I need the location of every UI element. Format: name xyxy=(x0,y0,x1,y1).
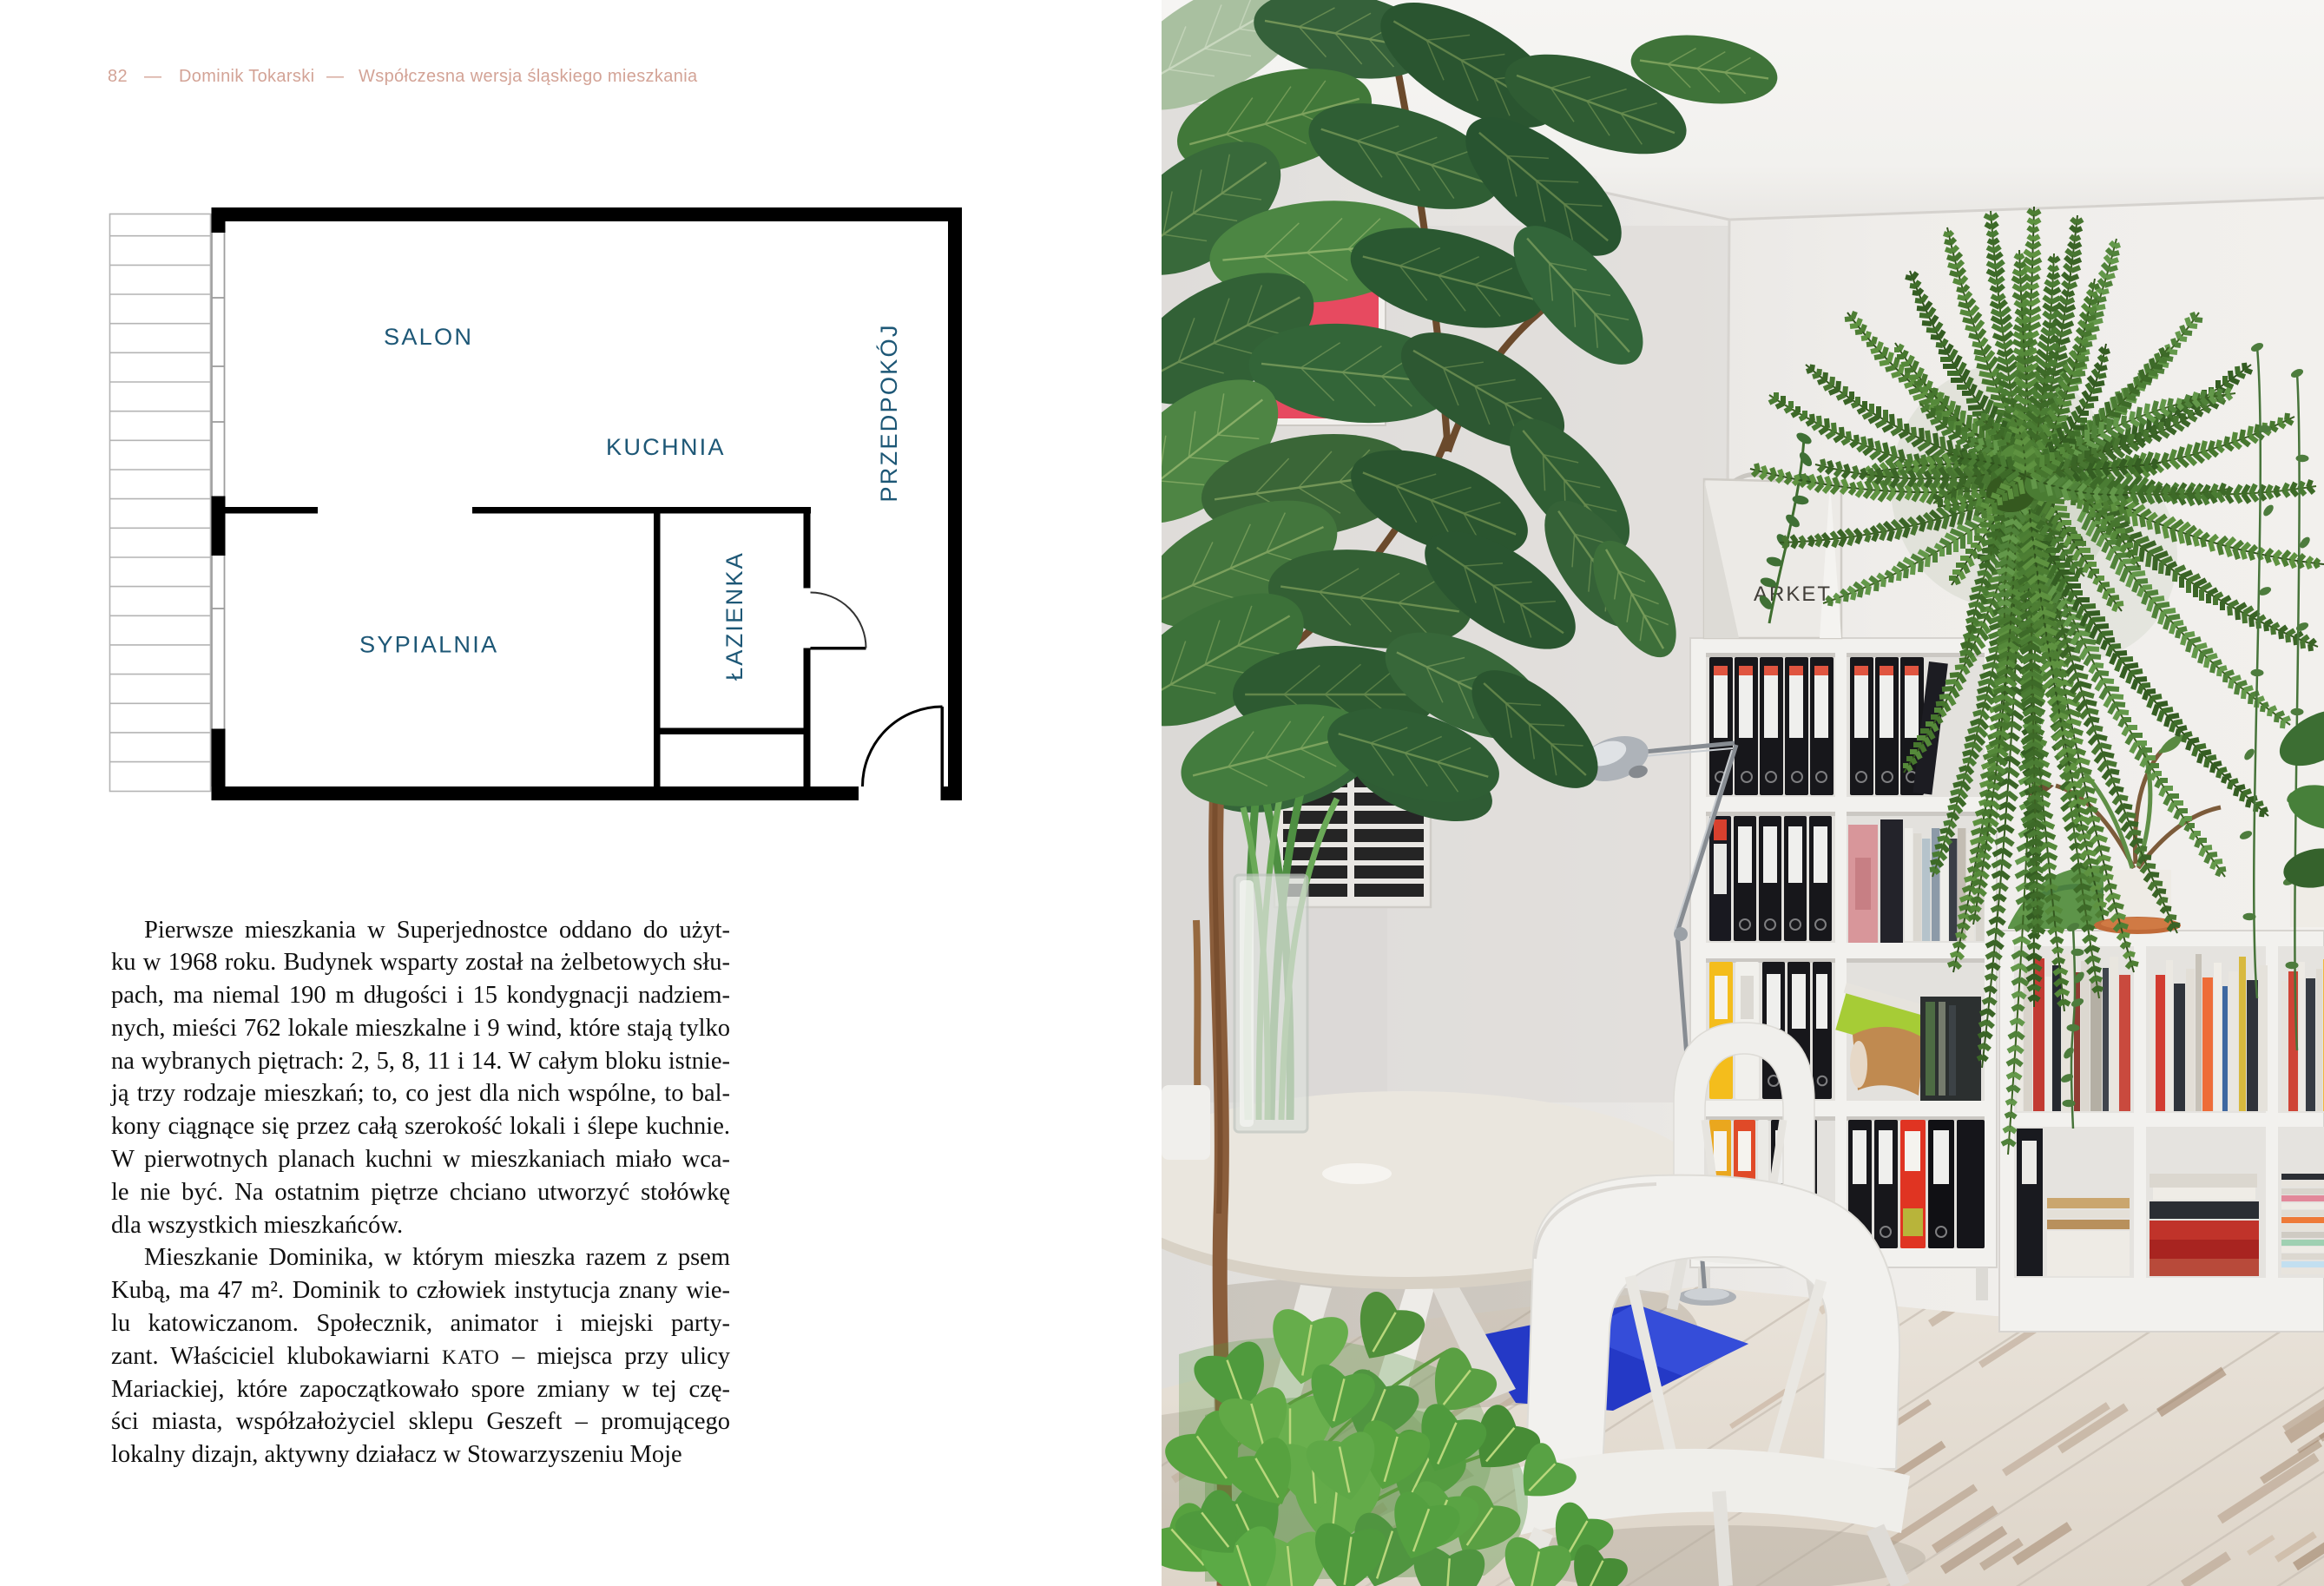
svg-text:SALON: SALON xyxy=(384,323,473,350)
svg-text:SYPIALNIA: SYPIALNIA xyxy=(359,631,498,658)
svg-text:ŁAZIENKA: ŁAZIENKA xyxy=(721,551,747,681)
svg-text:PRZEDPOKÓJ: PRZEDPOKÓJ xyxy=(875,323,902,502)
svg-text:KUCHNIA: KUCHNIA xyxy=(606,433,726,460)
